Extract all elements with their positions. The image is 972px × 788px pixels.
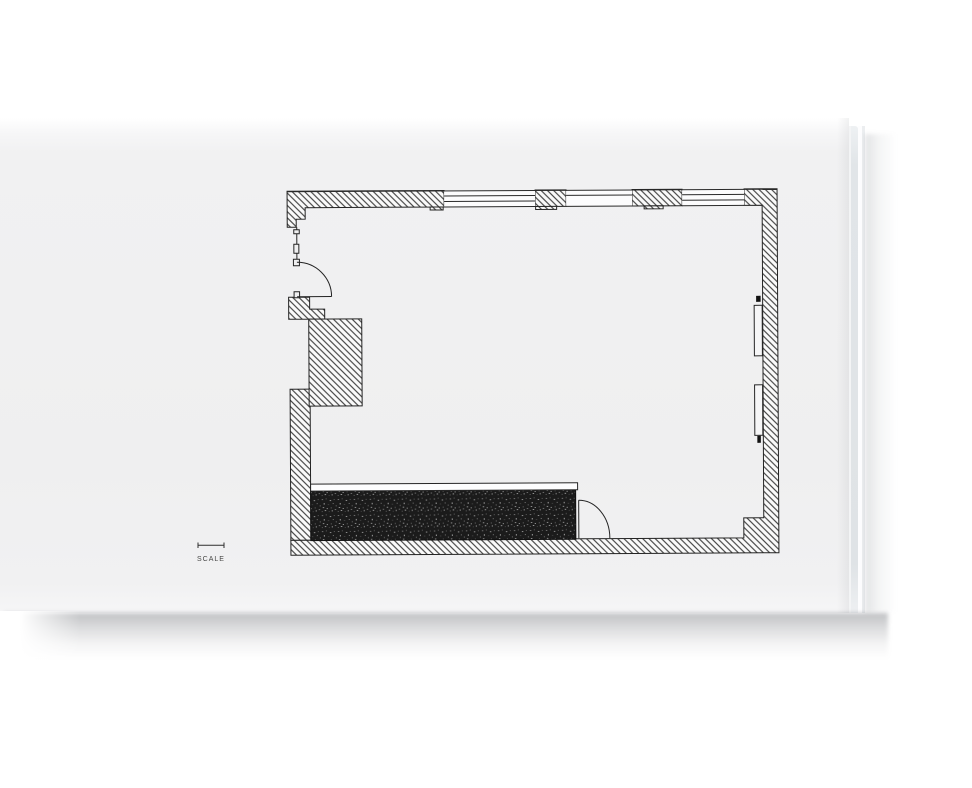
counter [311,483,578,541]
page-edge-1 [851,126,858,613]
pier-lip-3 [644,206,663,209]
radiator-upper [754,305,762,356]
scale-bar-icon [194,541,228,550]
wall-left-lower [290,389,311,540]
counter-door-swing-arc [579,500,610,538]
page-shadow-right [865,134,897,612]
wall-pier-2 [632,189,682,206]
page-edge-shade [837,118,849,613]
floor-plan-drawing [279,179,786,567]
counter-door [579,500,610,538]
radiator-lower [755,385,763,436]
pier-lip-2 [536,206,557,209]
window-1-glass [444,191,535,206]
radiator-tick-bottom [757,436,761,443]
entry-frame-mark-1 [294,230,300,234]
window-3-glass [682,190,744,205]
entry-door [293,227,331,298]
wall-top-left [287,190,444,227]
page-shadow-fade [0,611,80,663]
counter-top-edge [311,483,578,491]
wall-block-b [309,319,362,406]
pier-lip-1 [430,207,443,210]
wall-block-a [289,297,325,319]
entry-door-swing-arc [297,262,332,297]
radiator-tick-top [756,296,761,302]
scale-marker: SCALE [194,537,228,563]
window-2-glass [566,190,632,205]
book-photo: SCALE [0,0,972,788]
page-shadow-bottom [4,613,888,659]
counter-body [311,490,576,541]
radiators [754,296,763,443]
wall-pier-1 [535,190,566,207]
scale-label: SCALE [194,556,228,563]
entry-frame-mark-2 [294,244,299,253]
